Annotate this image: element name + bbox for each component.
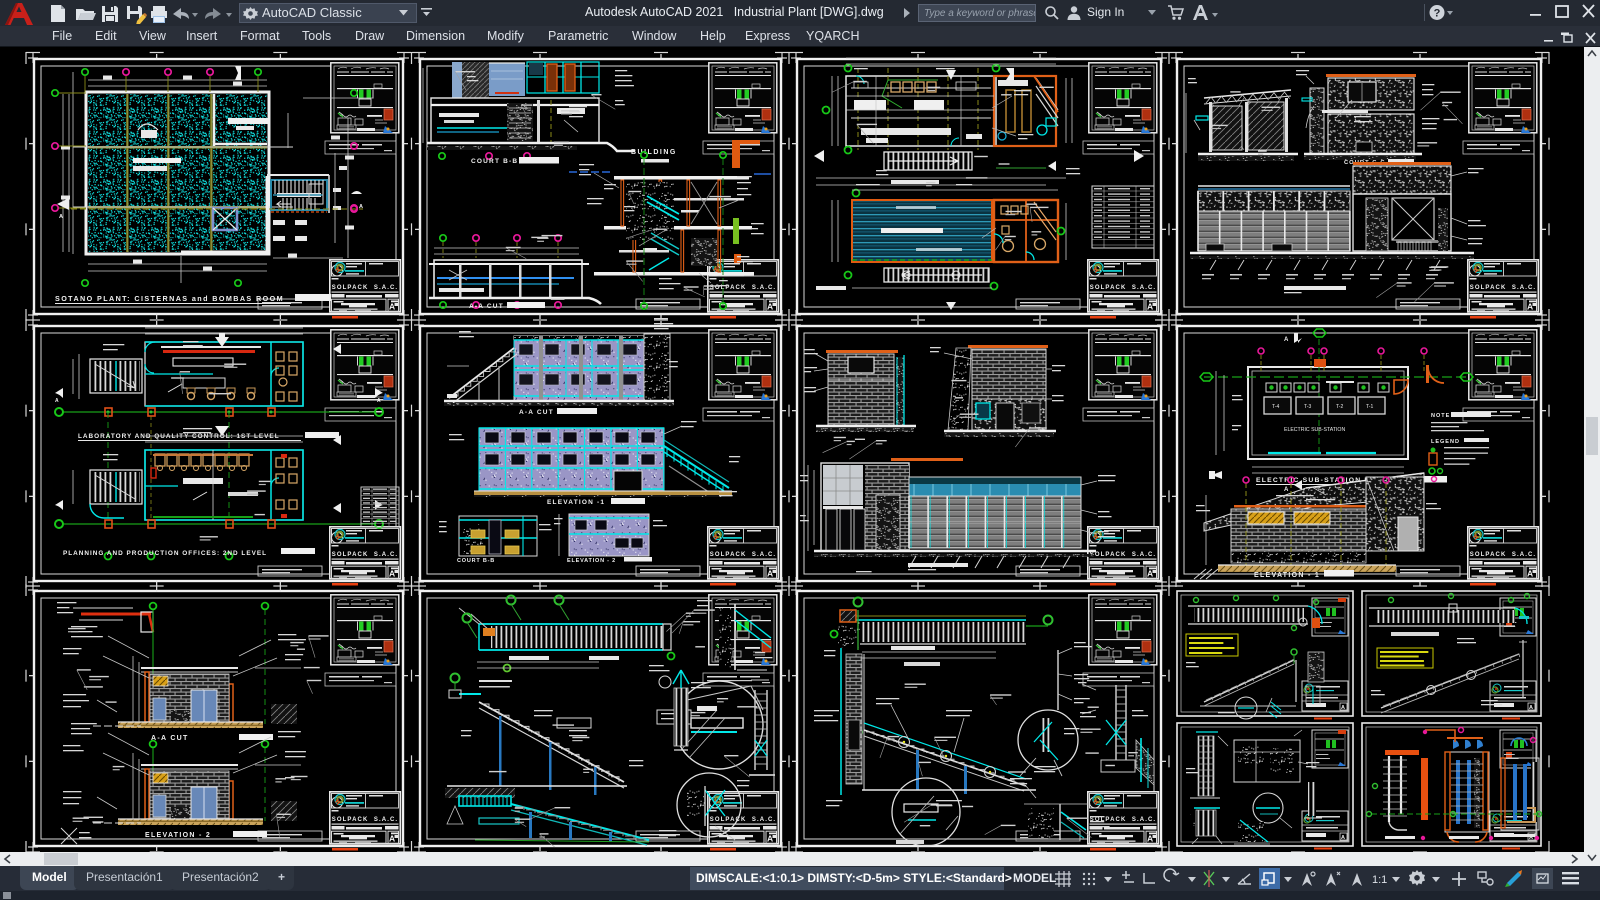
svg-text:T-3: T-3	[1304, 404, 1311, 410]
svg-text:T-1: T-1	[1366, 404, 1373, 410]
svg-text:ELEVATION -1: ELEVATION -1	[547, 499, 605, 506]
svg-text:NOTE: NOTE	[1431, 413, 1450, 419]
svg-text:ELEVATION - 2: ELEVATION - 2	[145, 832, 211, 839]
svg-text:A: A	[59, 214, 63, 220]
svg-text:A-A CUT: A-A CUT	[151, 735, 189, 742]
svg-text:ELEVATION - 2: ELEVATION - 2	[567, 558, 616, 564]
svg-text:A: A	[1529, 705, 1533, 711]
svg-text:T-4: T-4	[1272, 404, 1279, 410]
svg-text:A: A	[1284, 487, 1289, 493]
svg-text:T-2: T-2	[1336, 404, 1343, 410]
svg-text:COURT B-B: COURT B-B	[471, 158, 518, 165]
svg-text:A-A CUT: A-A CUT	[519, 409, 554, 416]
svg-text:A: A	[55, 398, 59, 404]
svg-text:SOTANO PLANT: CISTERNAS and BO: SOTANO PLANT: CISTERNAS and BOMBAS ROOM	[55, 294, 284, 303]
svg-text:A: A	[1284, 337, 1289, 343]
svg-text:1:1: 1:1	[1372, 874, 1387, 886]
svg-text:A: A	[1341, 835, 1345, 841]
svg-text:LABORATORY AND QUALITY CONTROL: LABORATORY AND QUALITY CONTROL: 1ST LEVE…	[78, 433, 280, 440]
svg-text:?: ?	[1434, 8, 1441, 20]
svg-text:ELEVATION - 1: ELEVATION - 1	[1254, 572, 1320, 579]
svg-text:ELECTRIC SUB-STATION: ELECTRIC SUB-STATION	[1284, 427, 1345, 433]
svg-text:A: A	[377, 398, 381, 404]
svg-text:BUILDING: BUILDING	[631, 149, 677, 156]
svg-text:COURT B-B: COURT B-B	[457, 558, 495, 564]
svg-text:LEGEND: LEGEND	[1431, 439, 1460, 445]
svg-text:PLANNING AND PRODUCTION OFFICE: PLANNING AND PRODUCTION OFFICES: 2ND LEV…	[63, 550, 267, 557]
svg-text:A: A	[359, 204, 363, 210]
svg-text:A-A CUT: A-A CUT	[469, 303, 504, 310]
svg-text:A: A	[1341, 705, 1345, 711]
